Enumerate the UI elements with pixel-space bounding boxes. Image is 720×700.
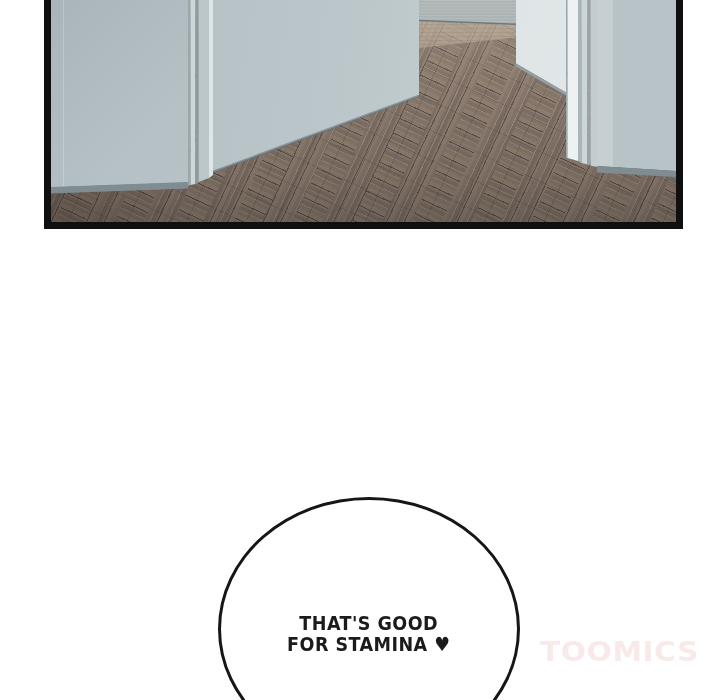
- comic-page: THAT'S GOOD FOR STAMINA ♥ TOOMICS: [0, 0, 720, 700]
- speech-bubble: THAT'S GOOD FOR STAMINA ♥: [218, 497, 520, 700]
- speech-line-2: FOR STAMINA ♥: [287, 634, 450, 656]
- speech-bubble-text: THAT'S GOOD FOR STAMINA ♥: [287, 603, 450, 656]
- hallway-scene: [51, 0, 676, 222]
- toomics-watermark: TOOMICS: [540, 636, 699, 667]
- comic-panel: [44, 0, 683, 229]
- speech-line-1: THAT'S GOOD: [287, 613, 450, 635]
